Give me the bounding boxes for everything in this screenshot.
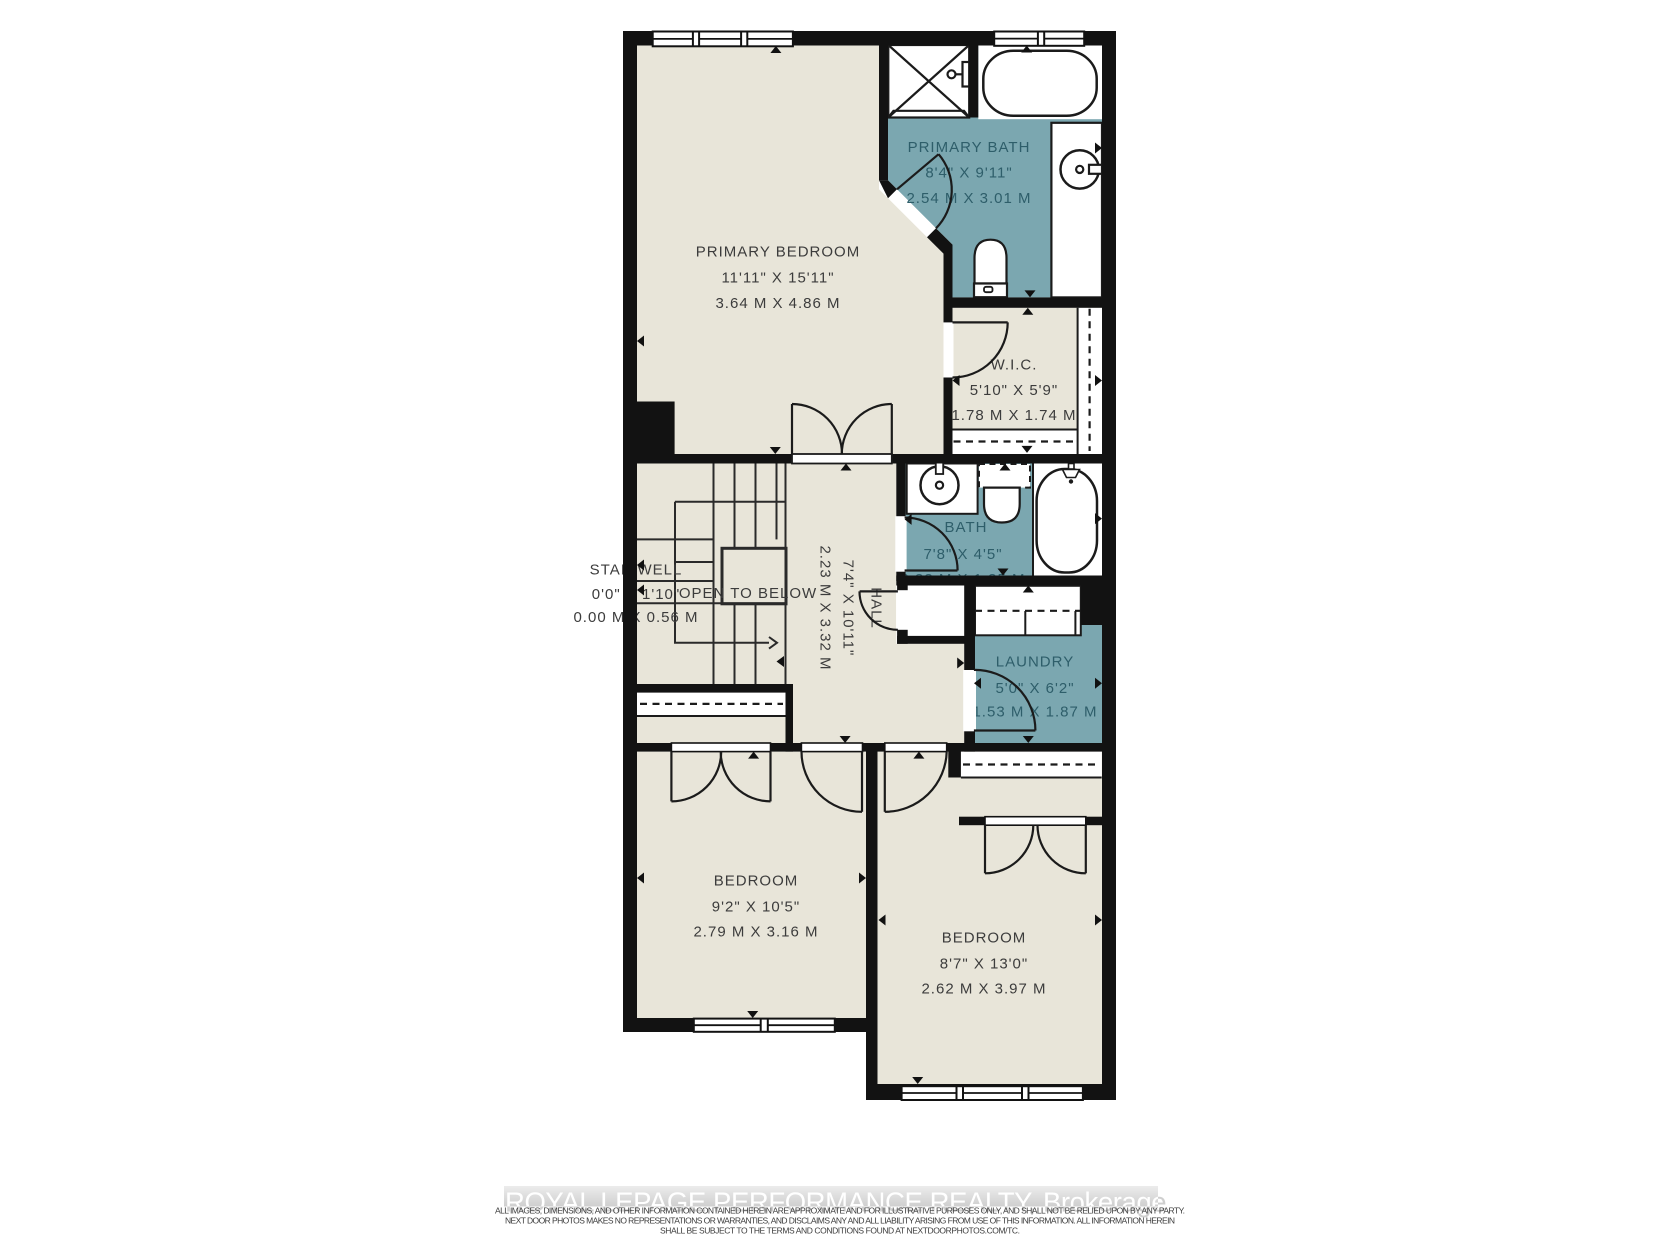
svg-text:7'4" X 10'11": 7'4" X 10'11" [840,560,857,657]
svg-text:W.I.C.: W.I.C. [991,357,1038,374]
svg-text:OPEN TO BELOW: OPEN TO BELOW [679,585,817,602]
svg-text:7'8" X 4'5": 7'8" X 4'5" [923,546,1002,563]
svg-text:ALL IMAGES, DIMENSIONS, AND OT: ALL IMAGES, DIMENSIONS, AND OTHER INFORM… [495,1205,1185,1215]
svg-text:2.23 M X 3.32 M: 2.23 M X 3.32 M [817,545,834,670]
svg-text:BEDROOM: BEDROOM [714,873,799,890]
svg-text:BATH: BATH [945,519,988,536]
svg-text:5'0" X 6'2": 5'0" X 6'2" [995,680,1074,697]
svg-text:5'10" X 5'9": 5'10" X 5'9" [970,382,1058,399]
svg-text:2.54 M X 3.01 M: 2.54 M X 3.01 M [906,190,1031,207]
svg-text:PRIMARY BATH: PRIMARY BATH [908,139,1031,156]
svg-text:8'4" X 9'11": 8'4" X 9'11" [925,165,1012,182]
svg-text:NEXT DOOR PHOTOS MAKES NO REPR: NEXT DOOR PHOTOS MAKES NO REPRESENTATION… [505,1216,1175,1226]
svg-text:BEDROOM: BEDROOM [942,930,1027,947]
svg-text:2.62 M X 3.97 M: 2.62 M X 3.97 M [921,981,1046,998]
svg-text:3.64 M X 4.86 M: 3.64 M X 4.86 M [715,295,840,312]
svg-text:9'2" X 10'5": 9'2" X 10'5" [712,899,800,916]
svg-text:2.79 M X 3.16 M: 2.79 M X 3.16 M [693,924,818,941]
svg-text:PRIMARY BEDROOM: PRIMARY BEDROOM [696,244,860,261]
svg-text:LAUNDRY: LAUNDRY [996,654,1074,671]
svg-text:1.78 M X 1.74 M: 1.78 M X 1.74 M [951,407,1076,424]
svg-text:SHALL BE SUBJECT TO THE TERMS: SHALL BE SUBJECT TO THE TERMS AND CONDIT… [660,1226,1020,1236]
svg-text:11'11" X 15'11": 11'11" X 15'11" [721,270,834,287]
svg-text:8'7" X 13'0": 8'7" X 13'0" [940,956,1028,973]
